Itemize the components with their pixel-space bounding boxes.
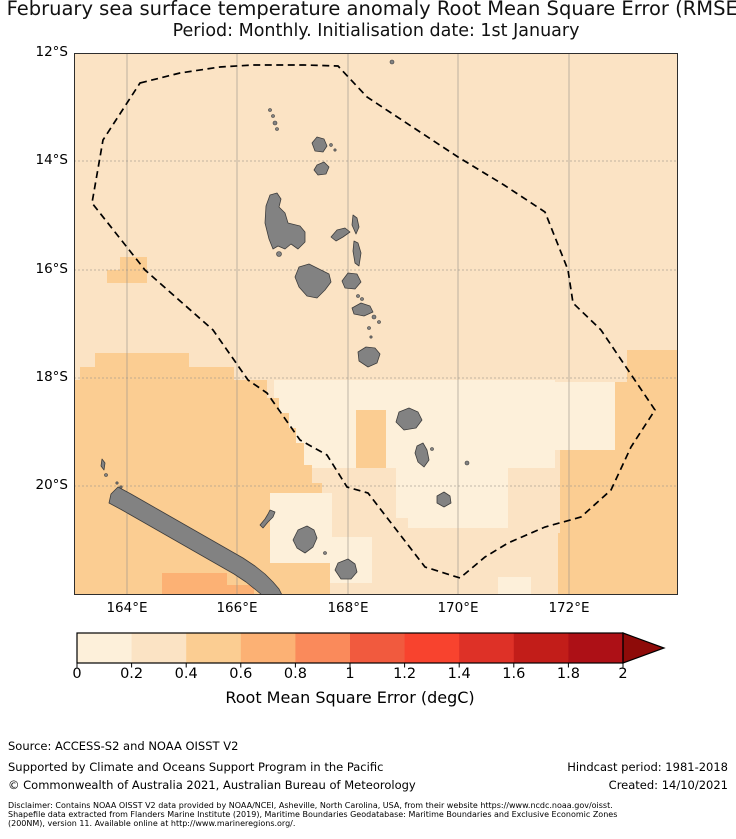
lat-tick-label: 16°S: [0, 261, 68, 277]
island-malo: [277, 252, 282, 257]
rmse-patch: [120, 257, 147, 270]
island-futuna: [465, 461, 469, 465]
supported-text: Supported by Climate and Oceans Support …: [8, 760, 383, 774]
copyright-text: © Commonwealth of Australia 2021, Austra…: [8, 778, 416, 792]
colorbar-segment: [350, 633, 405, 663]
lon-tick-label: 172°E: [539, 600, 599, 616]
colorbar-tick-label: 2: [618, 666, 627, 682]
colorbar-tick-label: 0.4: [175, 666, 198, 682]
island-torres-2: [272, 115, 275, 118]
colorbar: [0, 631, 736, 671]
created-date-text: Created: 14/10/2021: [609, 778, 728, 792]
lat-tick-label: 20°S: [0, 477, 68, 493]
rmse-patch: [270, 493, 332, 563]
colorbar-segment: [77, 633, 132, 663]
island-shepherd-2: [378, 321, 381, 324]
figure: February sea surface temperature anomaly…: [0, 0, 736, 839]
colorbar-segment: [405, 633, 460, 663]
island-paama: [357, 295, 360, 298]
lon-tick-label: 170°E: [428, 600, 488, 616]
island-torres-4: [276, 128, 279, 131]
island-torres-3: [273, 121, 277, 125]
island-islet-2: [120, 486, 122, 488]
rmse-patch: [554, 382, 615, 450]
rmse-patch: [162, 573, 227, 595]
colorbar-segment: [568, 633, 623, 663]
lat-tick-label: 14°S: [0, 152, 68, 168]
chart-title: February sea surface temperature anomaly…: [7, 0, 736, 20]
colorbar-segment: [514, 633, 569, 663]
colorbar-tick-label: 1.6: [502, 666, 525, 682]
island-islet-1: [116, 482, 118, 484]
colorbar-segment: [241, 633, 296, 663]
colorbar-segment: [186, 633, 241, 663]
colorbar-tick-label: 0: [72, 666, 81, 682]
disclaimer-line-1: Disclaimer: Contains NOAA OISST V2 data …: [8, 801, 613, 810]
island-mota-lava: [330, 144, 333, 147]
colorbar-tick-label: 1.2: [393, 666, 416, 682]
island-shepherd-3: [368, 327, 371, 330]
island-tongoa: [372, 315, 376, 319]
island-mota: [334, 149, 336, 151]
island-aniwa: [431, 448, 434, 451]
source-text: Source: ACCESS-S2 and NOAA OISST V2: [8, 739, 238, 753]
chart-subtitle: Period: Monthly. Initialisation date: 1s…: [173, 21, 580, 41]
colorbar-tick-label: 0.6: [229, 666, 252, 682]
island-belep-2: [105, 474, 108, 477]
map-area: [74, 53, 678, 595]
colorbar-tick-label: 0.8: [284, 666, 307, 682]
colorbar-tick-label: 1: [345, 666, 354, 682]
lon-tick-label: 168°E: [318, 600, 378, 616]
colorbar-tick-label: 1.4: [448, 666, 471, 682]
disclaimer-line-2: Shapefile data extracted from Flanders M…: [8, 810, 617, 819]
island-ureparapara: [390, 60, 394, 64]
disclaimer-line-3: (200NM), version 11. Available online at…: [8, 819, 295, 828]
colorbar-extend-arrow: [623, 633, 664, 663]
colorbar-segment: [295, 633, 350, 663]
lon-tick-label: 164°E: [97, 600, 157, 616]
hindcast-period-text: Hindcast period: 1981-2018: [567, 760, 728, 774]
colorbar-segment: [132, 633, 187, 663]
colorbar-axis-label: Root Mean Square Error (degC): [225, 688, 474, 707]
island-lopevi: [361, 298, 364, 301]
rmse-patch: [356, 410, 386, 468]
colorbar-segment: [459, 633, 514, 663]
island-shepherd-4: [370, 336, 372, 338]
island-tiga: [324, 552, 327, 555]
map-svg: [74, 53, 678, 595]
lat-tick-label: 12°S: [0, 44, 68, 60]
colorbar-tick-label: 0.2: [120, 666, 143, 682]
rmse-patch: [498, 577, 531, 595]
island-torres-1: [269, 109, 272, 112]
lon-tick-label: 166°E: [207, 600, 267, 616]
rmse-patch: [227, 585, 254, 595]
colorbar-tick-label: 1.8: [557, 666, 580, 682]
lat-tick-label: 18°S: [0, 369, 68, 385]
